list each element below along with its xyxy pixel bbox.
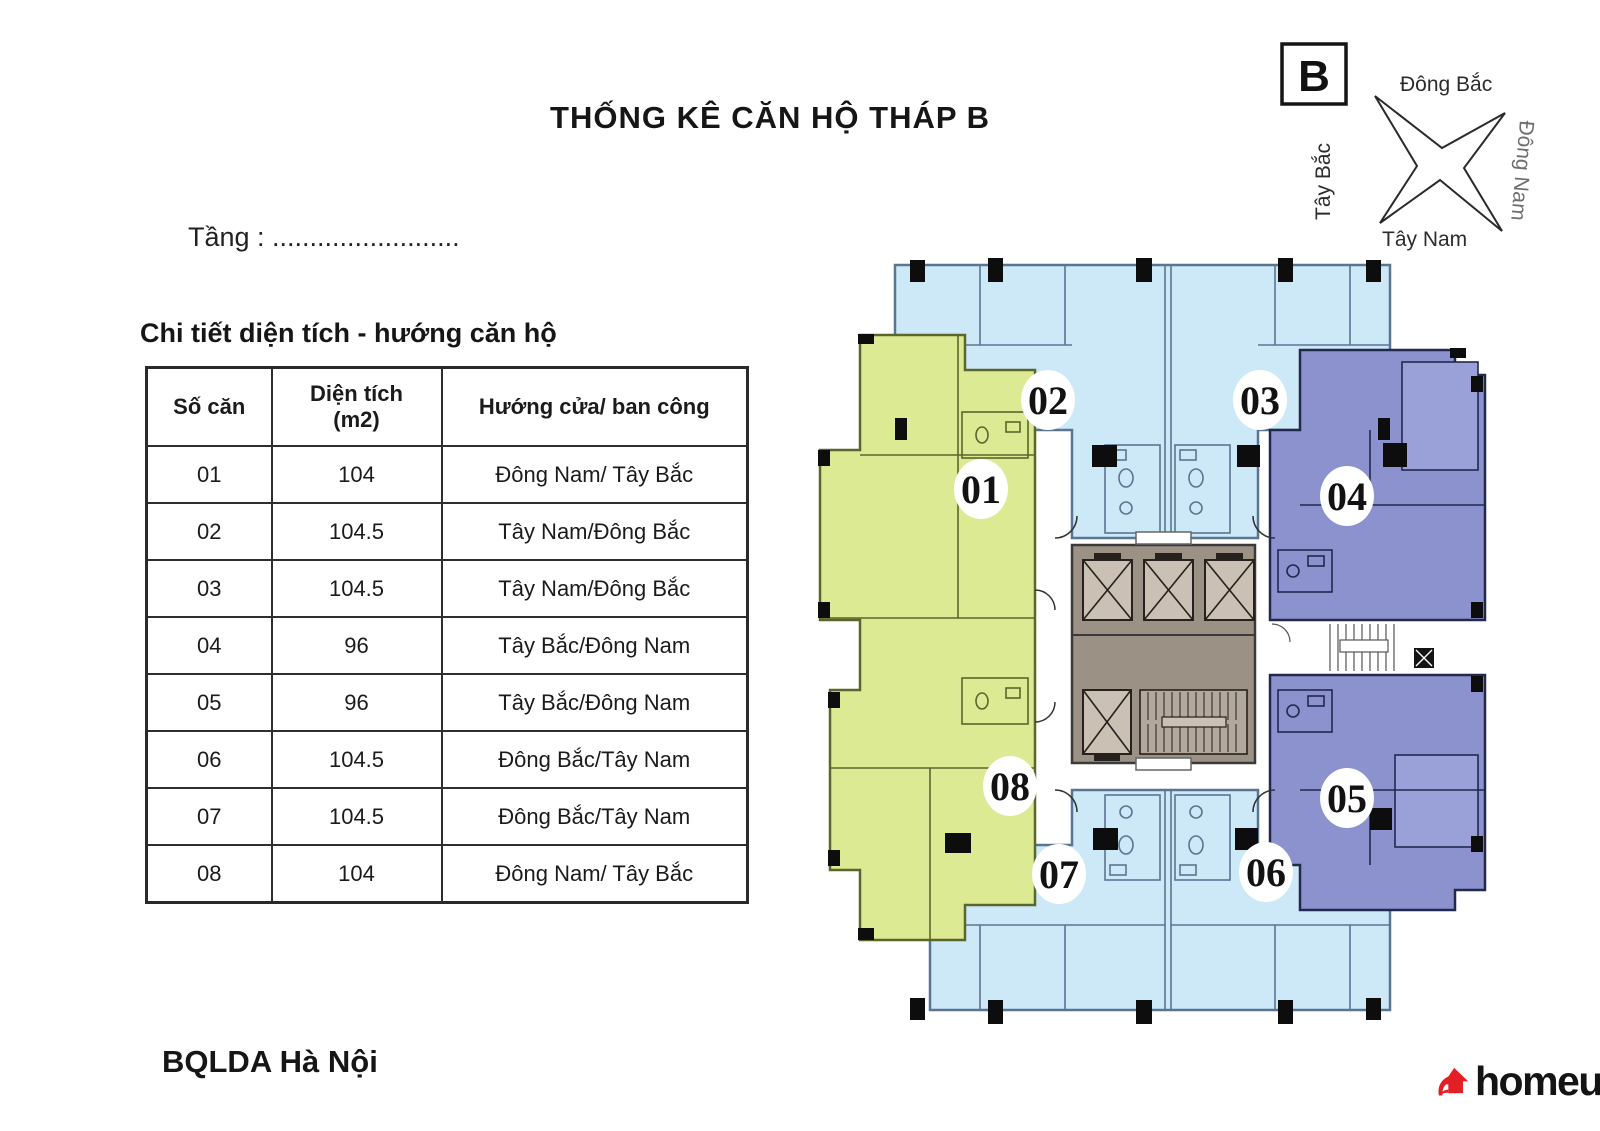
svg-text:07: 07: [1039, 852, 1079, 897]
table-row: 02104.5Tây Nam/Đông Bắc: [147, 503, 748, 560]
compass-rose: B Đông Bắc Tây Bắc Đông Nam Tây Nam: [1262, 28, 1594, 260]
svg-text:03: 03: [1240, 378, 1280, 423]
unit-badge-02: 02: [1021, 370, 1075, 430]
header-unit: Số căn: [147, 368, 272, 447]
brand-logo: homeup: [1436, 1058, 1600, 1105]
brand-name: homeup: [1475, 1058, 1600, 1105]
side-stairs-icon: [1272, 624, 1434, 671]
stairs-icon: [1140, 690, 1247, 754]
table-row: 07104.5Đông Bắc/Tây Nam: [147, 788, 748, 845]
table-row: 08104Đông Nam/ Tây Bắc: [147, 845, 748, 903]
unit-badge-06: 06: [1239, 842, 1293, 902]
compass-northwest: Tây Bắc: [1312, 143, 1335, 220]
tower-label: B: [1298, 52, 1330, 101]
homeup-house-icon: [1436, 1066, 1470, 1098]
document-page: THỐNG KÊ CĂN HỘ THÁP B Tầng : ..........…: [0, 0, 1600, 1131]
unit-badge-05: 05: [1320, 768, 1374, 828]
unit-badge-08: 08: [983, 756, 1037, 816]
table-caption: Chi tiết diện tích - hướng căn hộ: [140, 318, 557, 349]
floor-plan: 01 02 03 04 05 06: [810, 250, 1510, 1030]
svg-text:01: 01: [961, 467, 1001, 512]
wing-west-units-01-08: [820, 335, 1035, 940]
header-direction: Hướng cửa/ ban công: [442, 368, 748, 447]
floor-label: Tầng : .........................: [188, 222, 460, 253]
table-row: 06104.5Đông Bắc/Tây Nam: [147, 731, 748, 788]
page-title: THỐNG KÊ CĂN HỘ THÁP B: [450, 100, 1090, 136]
compass-star-icon: [1375, 96, 1505, 231]
svg-text:02: 02: [1028, 378, 1068, 423]
svg-text:05: 05: [1327, 776, 1367, 821]
unit-badge-01: 01: [954, 459, 1008, 519]
unit-area-table: Số căn Diện tích (m2) Hướng cửa/ ban côn…: [145, 366, 749, 904]
table-row: 0496Tây Bắc/Đông Nam: [147, 617, 748, 674]
table-header-row: Số căn Diện tích (m2) Hướng cửa/ ban côn…: [147, 368, 748, 447]
table-row: 01104Đông Nam/ Tây Bắc: [147, 446, 748, 503]
svg-text:08: 08: [990, 764, 1030, 809]
compass-southeast: Đông Nam: [1506, 120, 1538, 222]
unit-badge-03: 03: [1233, 370, 1287, 430]
table-row: 0596Tây Bắc/Đông Nam: [147, 674, 748, 731]
unit-badge-04: 04: [1320, 466, 1374, 526]
header-area: Diện tích (m2): [272, 368, 442, 447]
svg-text:04: 04: [1327, 474, 1367, 519]
core-block: [1072, 545, 1255, 763]
svg-text:06: 06: [1246, 850, 1286, 895]
issuer-label: BQLDA Hà Nội: [162, 1044, 378, 1080]
unit-badge-07: 07: [1032, 844, 1086, 904]
compass-northeast: Đông Bắc: [1400, 73, 1492, 96]
table-row: 03104.5Tây Nam/Đông Bắc: [147, 560, 748, 617]
compass-southwest: Tây Nam: [1382, 228, 1467, 251]
